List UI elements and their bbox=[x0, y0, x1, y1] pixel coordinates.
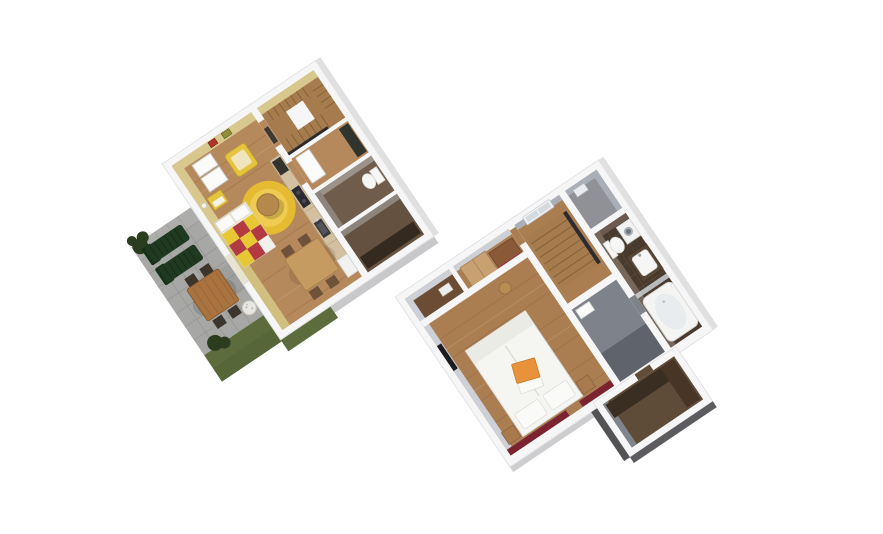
floorplan-render-canvas bbox=[0, 0, 883, 534]
floor-plan-upper bbox=[395, 157, 755, 522]
floorplan-svg bbox=[0, 0, 883, 534]
floor-plan-ground bbox=[101, 57, 446, 392]
